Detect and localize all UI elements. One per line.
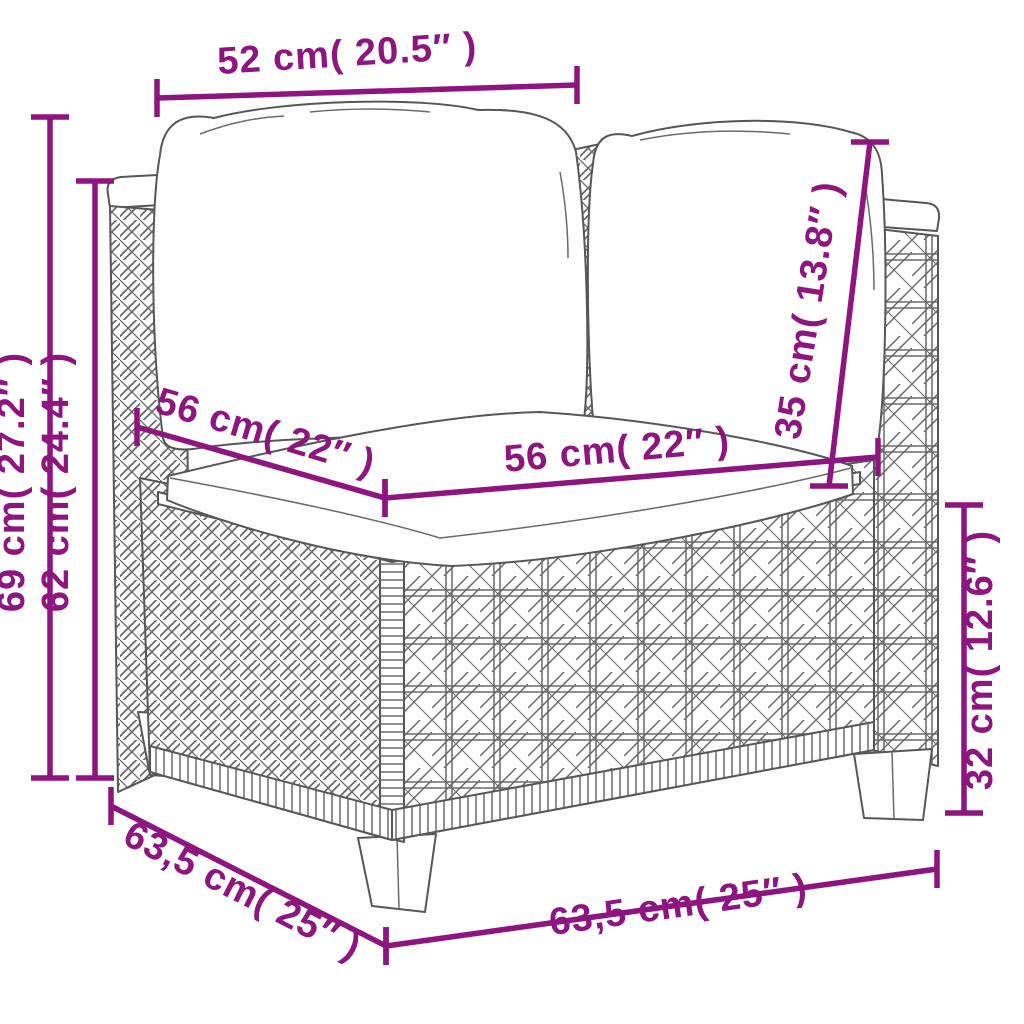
dimension-diagram: 52 cm( 20.5″ )69 cm( 27.2″ )62 cm( 24.4″… [0,0,1024,1024]
dimension-label-base-height: 32 cm( 12.6″ ) [959,530,1001,790]
sofa-dimension-figure: 52 cm( 20.5″ )69 cm( 27.2″ )62 cm( 24.4″… [0,0,1024,1024]
dimension-base-width: 63,5 cm( 25″ ) [386,850,937,965]
dimension-label-arm-height: 62 cm( 24.4″ ) [35,352,77,612]
base-corner-braid [380,528,404,842]
dimension-label-top-width: 52 cm( 20.5″ ) [216,25,478,83]
dimension-label-base-width: 63,5 cm( 25″ ) [547,866,811,944]
dimension-line [157,85,577,98]
dimension-label-overall-height: 69 cm( 27.2″ ) [0,352,33,612]
dimension-arm-height: 62 cm( 24.4″ ) [35,181,114,778]
back-cushion-right [588,121,886,466]
dimension-base-height: 32 cm( 12.6″ ) [945,505,1001,813]
dimension-label-base-depth: 63,5 cm( 25″ ) [117,814,368,970]
